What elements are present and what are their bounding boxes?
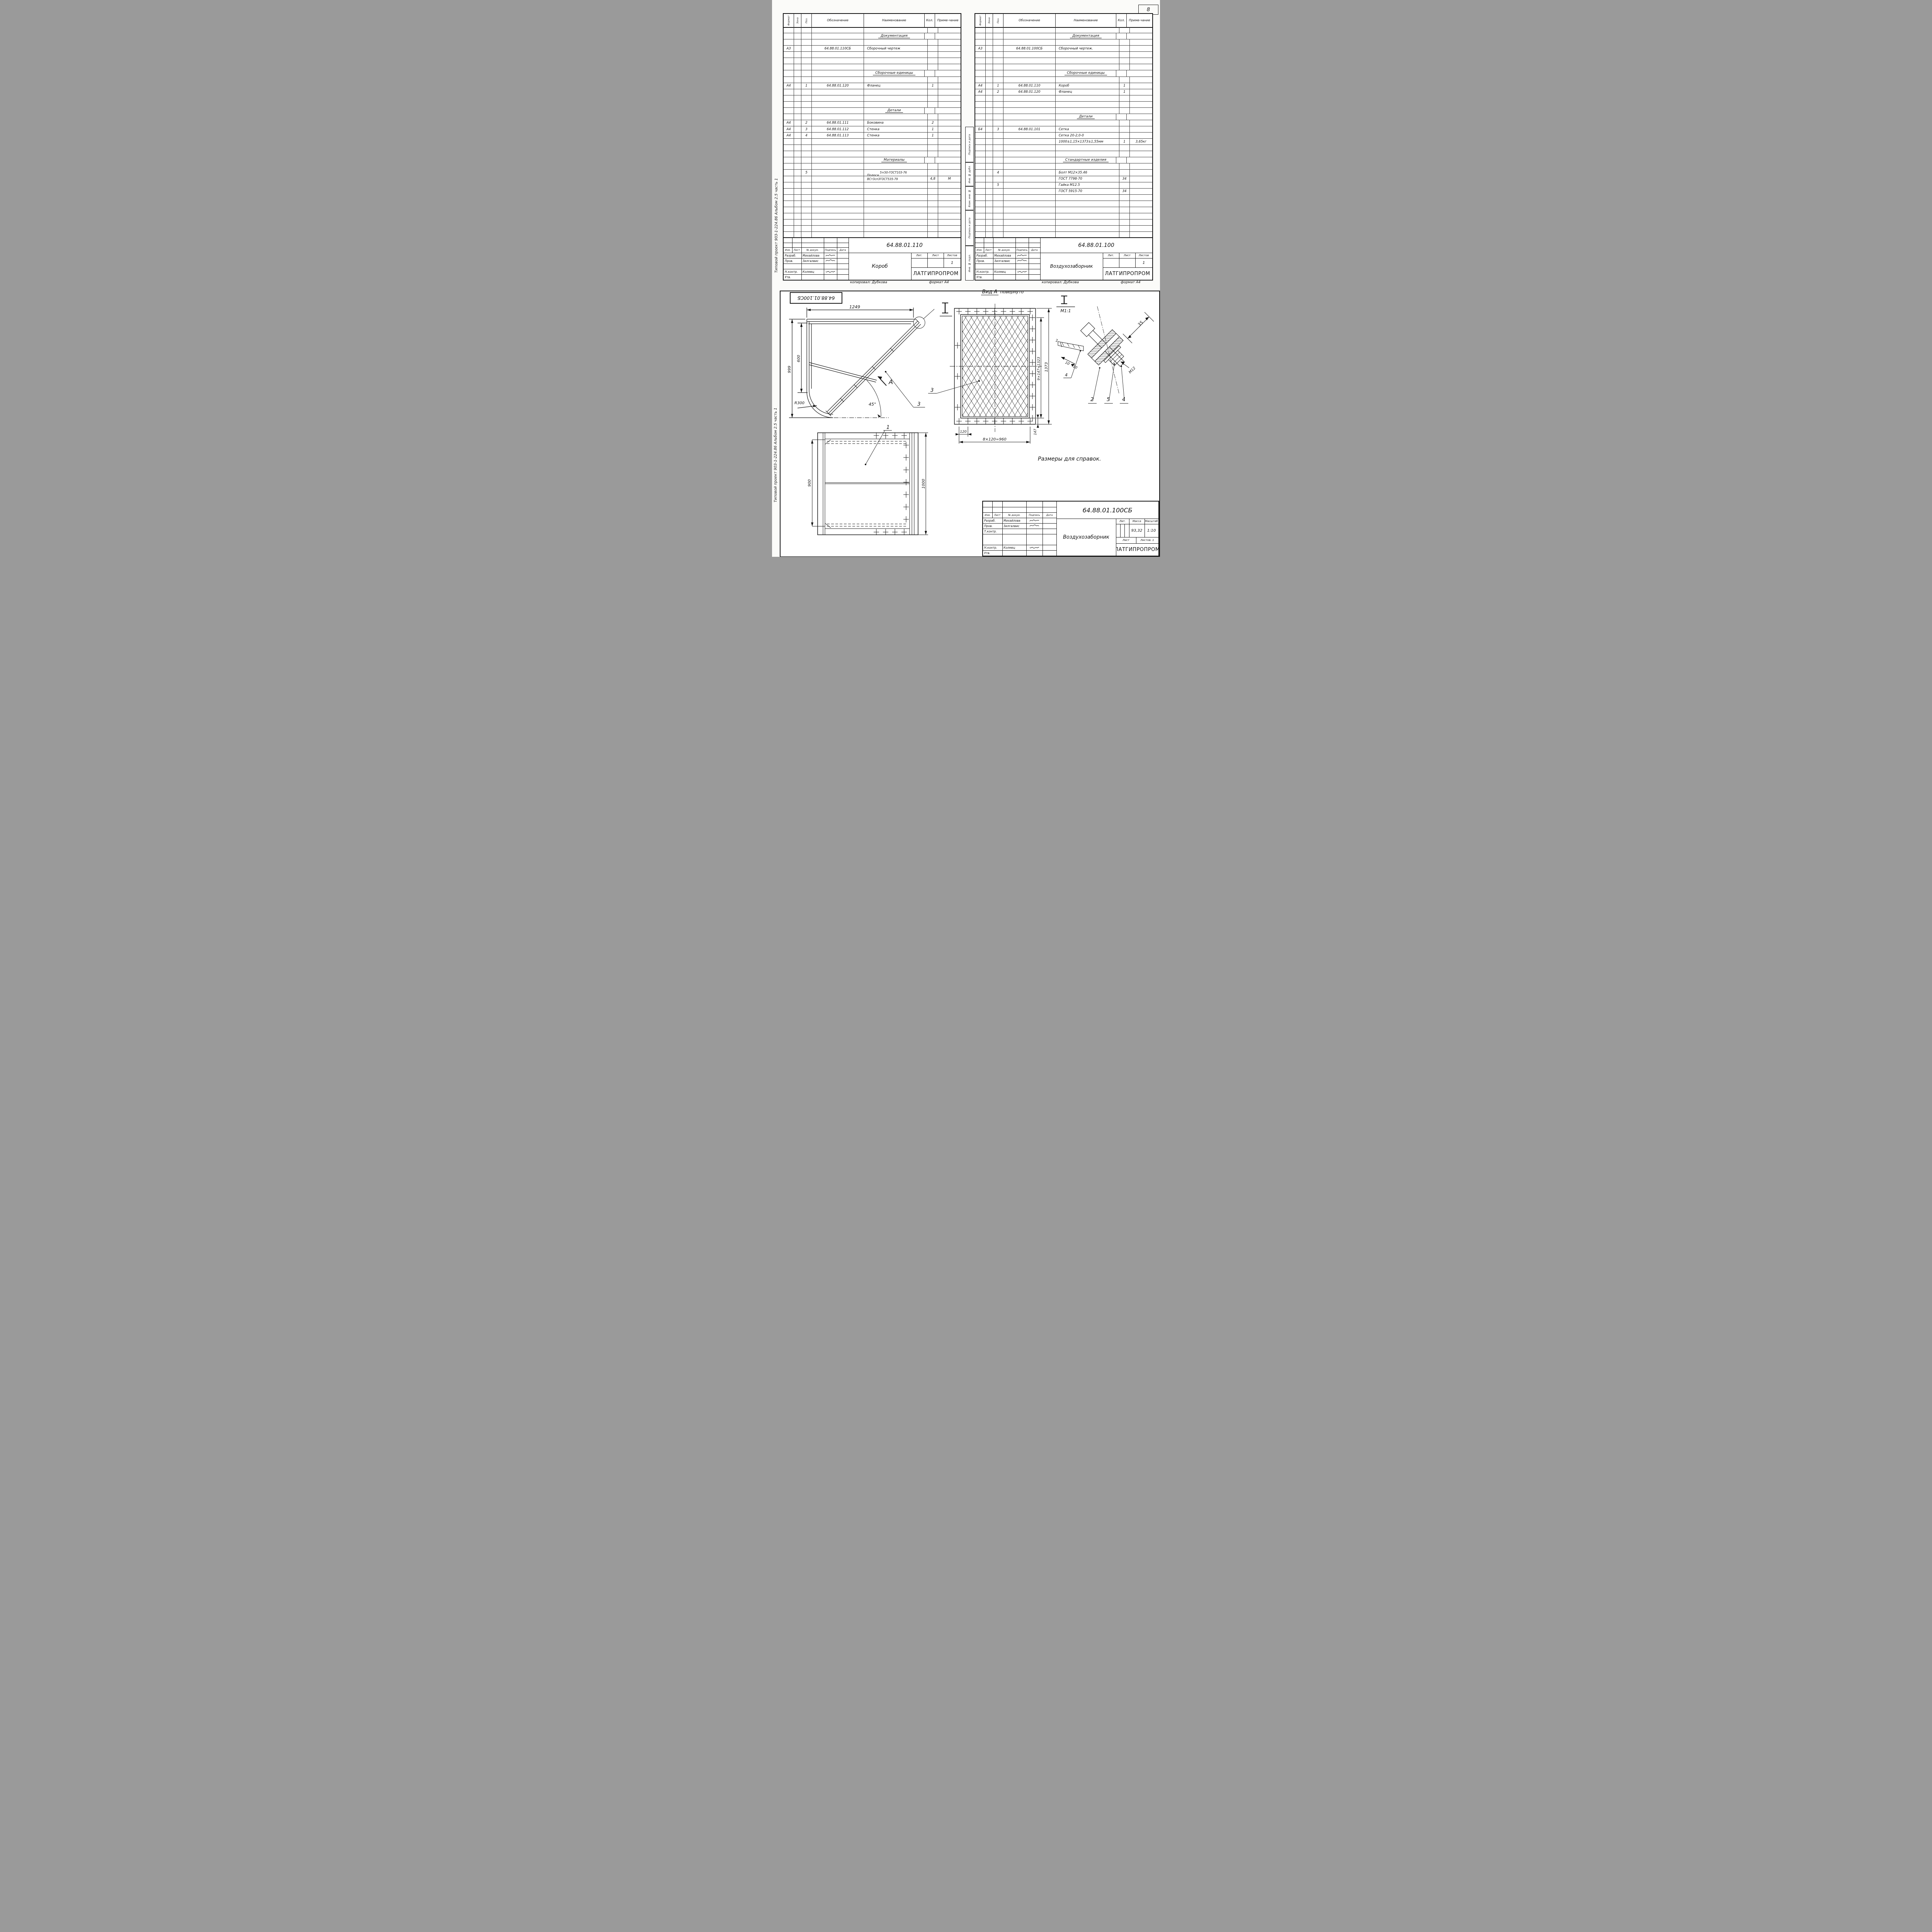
spec-cell-f <box>784 219 794 225</box>
dim-999: 999 <box>787 366 792 373</box>
spec-cell-note <box>938 145 961 151</box>
spec-cell-q: 1 <box>1119 139 1130 145</box>
spec-cell-n <box>1056 102 1119 107</box>
spec-cell-z <box>794 83 801 89</box>
spec-cell-f <box>975 70 986 76</box>
spec-cell-d <box>1003 27 1056 33</box>
spec-cell-p <box>993 46 1003 51</box>
role: Утв. <box>983 550 1003 556</box>
spec-cell-note <box>1130 182 1152 188</box>
spec-cell-n <box>864 219 928 225</box>
spec-cell-p <box>993 207 1003 213</box>
spec-cell-n: Сборочные единицы <box>864 70 925 76</box>
stamp-field: Инв. № дубл. <box>965 162 974 186</box>
spec-sheet-vozduhozabornik: Формат Зона Поз. Обозначение Наименовани… <box>975 13 1153 281</box>
spec-cell-f <box>784 157 794 163</box>
spec-row <box>784 58 961 64</box>
spec-cell-d <box>1003 70 1056 76</box>
spec-row <box>975 102 1152 108</box>
spec-cell-z <box>794 77 801 83</box>
rev-sign: Подпись <box>824 247 837 253</box>
spec-cell-d <box>812 58 864 64</box>
spec-row <box>784 182 961 189</box>
col-format: Формат <box>784 14 794 27</box>
spec-cell-n: Детали <box>864 108 925 114</box>
spec-cell-note <box>1130 195 1152 201</box>
side-view-drawing: 1249 600 999 R300 45° А 3 <box>786 304 937 420</box>
callout-3: 3 <box>930 388 934 393</box>
spec-cell-note <box>938 95 961 101</box>
spec-cell-d <box>1003 39 1056 45</box>
spec-cell-q <box>1119 27 1130 33</box>
spec-row <box>784 27 961 33</box>
spec-cell-p: 3 <box>993 126 1003 132</box>
spec-cell-q <box>928 213 938 219</box>
spec-cell-n: ГОСТ 5915-70 <box>1056 189 1119 194</box>
spec-cell-z <box>794 145 801 151</box>
reference-note: Размеры для справок. <box>1038 456 1101 462</box>
spec-row <box>784 64 961 70</box>
spec-cell-z <box>986 195 993 201</box>
spec-row <box>975 64 1152 70</box>
section-heading: Детали <box>885 109 903 113</box>
spec-cell-p <box>801 219 812 225</box>
spec-cell-d <box>812 157 864 163</box>
spec-cell-n: Стандартные изделия <box>1056 157 1116 163</box>
spec-cell-d <box>1003 207 1056 213</box>
spec-row <box>975 151 1152 157</box>
spec-cell-q <box>928 64 938 70</box>
spec-cell-p <box>993 189 1003 194</box>
rev-izm: Изм. <box>784 247 792 253</box>
spec-cell-d <box>1003 33 1056 39</box>
spec-cell-d <box>812 151 864 157</box>
spec-cell-q <box>928 77 938 83</box>
spec-cell-q: 1 <box>1119 83 1130 89</box>
signature <box>1026 545 1043 550</box>
spec-row <box>975 120 1152 126</box>
spec-cell-d <box>1003 157 1056 163</box>
spec-row <box>975 58 1152 64</box>
dim-1000: 1000 <box>922 479 926 488</box>
spec-cell-f: Б4 <box>975 126 986 132</box>
spec-cell-note <box>938 120 961 126</box>
spec-row <box>784 219 961 226</box>
col-name: Наименование <box>864 14 925 27</box>
spec-cell-f <box>975 219 986 225</box>
rev-list: Лист <box>984 247 993 253</box>
spec-cell-p <box>801 213 812 219</box>
mass-label: Масса <box>1129 519 1145 524</box>
spec-cell-n <box>1056 226 1119 231</box>
spec-cell-q <box>1116 114 1127 120</box>
spec-cell-d <box>812 232 864 238</box>
signature <box>1015 269 1029 274</box>
spec-row: Документация <box>784 33 961 39</box>
spec-cell-note <box>1130 201 1152 207</box>
spec-cell-p <box>993 70 1003 76</box>
spec-cell-d <box>812 114 864 120</box>
spec-cell-note <box>1130 163 1152 169</box>
signature <box>1015 258 1029 264</box>
col-pos: Поз. <box>801 14 812 27</box>
spec-cell-n <box>864 201 928 207</box>
spec-cell-z <box>986 170 993 175</box>
spec-cell-q <box>1119 145 1130 151</box>
spec-cell-d: 64.88.01.113 <box>812 133 864 138</box>
spec-cell-note <box>938 126 961 132</box>
spec-cell-f <box>975 108 986 114</box>
spec-row <box>784 95 961 102</box>
spec-cell-z <box>986 151 993 157</box>
spec-cell-z <box>986 64 993 70</box>
spec-cell-n <box>864 226 928 231</box>
spec-cell-q <box>1116 157 1127 163</box>
spec-cell-n <box>1056 120 1119 126</box>
view-a-drawing: 9×147=1323 1373 147 120 8×120=960 3 <box>925 299 1056 446</box>
spec-cell-q <box>925 157 935 163</box>
stamp-text: 64.88.01.100СБ <box>798 295 835 301</box>
spec-row <box>975 27 1152 33</box>
spec-cell-d <box>812 27 864 33</box>
spec-cell-p <box>993 58 1003 64</box>
spec-cell-z <box>794 33 801 39</box>
spec-cell-d <box>1003 163 1056 169</box>
stamp-field: Инв. № подл. <box>965 246 974 281</box>
spec-cell-note: М <box>938 176 961 182</box>
format-note: формат А4 <box>923 280 954 285</box>
spec-cell-f: А4 <box>784 83 794 89</box>
spec-row: Детали <box>784 108 961 114</box>
spec-cell-d <box>812 89 864 95</box>
spec-cell-d <box>812 176 864 182</box>
spec-cell-p <box>993 77 1003 83</box>
spec-cell-p <box>801 108 812 114</box>
spec-cell-d <box>1003 108 1056 114</box>
spec-row: А4464.88.01.113Стенка1 <box>784 133 961 139</box>
spec-cell-note <box>935 157 961 163</box>
spec-cell-q: 4,8 <box>928 176 938 182</box>
spec-row <box>784 151 961 157</box>
spec-row: А4164.88.01.110Короб1 <box>975 83 1152 89</box>
spec-cell-note <box>935 108 961 114</box>
spec-row: А364.88.01.110СБСборочный чертеж <box>784 46 961 52</box>
spec-row <box>975 219 1152 226</box>
spec-cell-n <box>864 163 928 169</box>
col-qty: Кол. <box>925 14 935 27</box>
spec-row <box>975 39 1152 46</box>
spec-cell-q <box>1119 195 1130 201</box>
dim-2: 2 <box>1056 339 1058 343</box>
rev-date: Дата <box>1029 247 1040 253</box>
spec-cell-f <box>975 213 986 219</box>
spec-cell-p <box>801 163 812 169</box>
dim-r300: R300 <box>794 401 804 405</box>
spec-cell-d <box>812 33 864 39</box>
spec-cell-n <box>1056 201 1119 207</box>
spec-cell-z <box>986 213 993 219</box>
spec-cell-note <box>1130 52 1152 58</box>
spec-row <box>784 77 961 83</box>
spec-cell-f <box>975 139 986 145</box>
spec-cell-n <box>864 207 928 213</box>
spec-cell-d <box>1003 114 1056 120</box>
spec-cell-n <box>864 52 928 58</box>
signature <box>824 253 837 258</box>
spec-cell-d: 64.88.01.110СБ <box>812 46 864 51</box>
spec-cell-q <box>928 27 938 33</box>
spec-cell-note <box>1130 83 1152 89</box>
spec-cell-z <box>986 219 993 225</box>
spec-row: А4264.88.01.120Фланец1 <box>975 89 1152 95</box>
spec-cell-n <box>864 189 928 194</box>
spec-cell-n: Сборочный чертеж <box>864 46 928 51</box>
spec-cell-note <box>1130 102 1152 107</box>
spec-cell-note <box>938 114 961 120</box>
dim-147: 147 <box>1034 429 1037 435</box>
spec-cell-note: 3,65кг <box>1130 139 1152 145</box>
spec-row <box>784 207 961 213</box>
spec-row <box>784 189 961 195</box>
spec-row: ГОСТ 7798-7034 <box>975 176 1152 182</box>
spec-cell-note <box>1130 46 1152 51</box>
spec-cell-z <box>986 58 993 64</box>
spec-row <box>975 195 1152 201</box>
rev-date: Дата <box>1043 512 1056 518</box>
spec-row: 4Болт М12×35.46 <box>975 170 1152 176</box>
spec-cell-n <box>1056 27 1119 33</box>
spec-cell-q <box>925 108 935 114</box>
spec-row <box>975 108 1152 114</box>
rev-doc: № докум. <box>1002 512 1026 518</box>
spec-cell-note <box>938 52 961 58</box>
spec-cell-d <box>1003 58 1056 64</box>
spec-cell-p <box>801 58 812 64</box>
spec-cell-note <box>938 139 961 145</box>
spec-cell-q: 1 <box>928 133 938 138</box>
spec-cell-n <box>1056 77 1119 83</box>
spec-cell-note <box>1130 189 1152 194</box>
spec-rows: ДокументацияА364.88.01.100СБСборочный че… <box>975 27 1152 238</box>
spec-cell-f <box>784 139 794 145</box>
spec-cell-q: 1 <box>928 83 938 89</box>
spec-cell-n: Гайка М12.5 <box>1056 182 1119 188</box>
spec-cell-d <box>1003 151 1056 157</box>
spec-cell-q <box>1119 182 1130 188</box>
spec-cell-q <box>928 189 938 194</box>
spec-cell-d <box>1003 95 1056 101</box>
spec-row: ВСт3сп3ГОСТ535-794,8М <box>784 176 961 182</box>
spec-cell-p <box>993 163 1003 169</box>
spec-cell-q <box>925 33 935 39</box>
spec-cell-z <box>986 126 993 132</box>
spec-cell-p <box>801 77 812 83</box>
sheet-label: Лист <box>1116 537 1136 543</box>
main-title-block: 64.88.01.100СБ Воздухозаборник Лит. Масс… <box>982 501 1159 556</box>
spec-sheet-korob: Формат Зона Поз. Обозначение Наименовани… <box>783 13 961 281</box>
spec-cell-n <box>864 114 928 120</box>
spec-cell-n: Полоса5×50-ГОСТ103-76 <box>864 170 928 175</box>
spec-cell-q <box>1119 126 1130 132</box>
spec-cell-d <box>812 102 864 107</box>
spec-cell-q <box>928 102 938 107</box>
spec-cell-d <box>812 77 864 83</box>
dim-m12: М12 <box>1128 366 1136 374</box>
spec-cell-p: 1 <box>993 83 1003 89</box>
spec-cell-note <box>938 195 961 201</box>
spec-cell-p <box>801 139 812 145</box>
spec-cell-d <box>812 195 864 201</box>
spec-cell-q <box>928 201 938 207</box>
spec-cell-p <box>801 176 812 182</box>
spec-cell-d <box>1003 102 1056 107</box>
spec-cell-note <box>1130 126 1152 132</box>
section-heading: Документация <box>878 34 910 38</box>
list-label: Лист <box>1119 253 1135 258</box>
spec-cell-n <box>864 39 928 45</box>
scale-label: Масштаб <box>1145 519 1158 524</box>
spec-cell-q <box>1119 151 1130 157</box>
spec-cell-d: 64.88.01.120 <box>812 83 864 89</box>
spec-row <box>975 163 1152 170</box>
callout-3: 3 <box>917 401 920 407</box>
spec-cell-d <box>812 39 864 45</box>
spec-cell-note <box>935 70 961 76</box>
flipped-corner-stamp: 64.88.01.100СБ <box>790 292 842 304</box>
spec-cell-z <box>986 27 993 33</box>
spec-row: 5Гайка М12.5 <box>975 182 1152 189</box>
spec-cell-f <box>975 207 986 213</box>
spec-row <box>975 52 1152 58</box>
spec-cell-z <box>794 195 801 201</box>
spec-cell-p <box>801 39 812 45</box>
spec-row: А364.88.01.100СБСборочный чертеж. <box>975 46 1152 52</box>
callout-4-left: 4 <box>1065 372 1068 378</box>
spec-cell-note <box>938 232 961 238</box>
spec-cell-z <box>986 189 993 194</box>
spec-cell-p: 2 <box>993 89 1003 95</box>
spec-cell-n: Детали <box>1056 114 1116 120</box>
spec-cell-q: 1 <box>1119 89 1130 95</box>
spec-cell-p <box>801 27 812 33</box>
listov-label: Листов <box>944 253 961 258</box>
spec-row: Материалы <box>784 157 961 163</box>
spec-cell-z <box>794 157 801 163</box>
spec-cell-p <box>993 139 1003 145</box>
spec-cell-p <box>993 114 1003 120</box>
spec-cell-p <box>993 33 1003 39</box>
spec-cell-z <box>794 207 801 213</box>
spec-cell-z <box>986 145 993 151</box>
spec-cell-note <box>1127 70 1152 76</box>
spec-cell-d <box>812 226 864 231</box>
spec-row: Сборочные единицы <box>784 70 961 77</box>
spec-cell-f <box>975 27 986 33</box>
spec-cell-z <box>794 226 801 231</box>
margin-note-bottom: Типовой проект 903-1-224.86 Альбом 2.5 ч… <box>774 408 778 502</box>
spec-cell-p <box>993 219 1003 225</box>
title-block-korob: 64.88.01.110 Короб Лит. Лист Листов 1 ЛА… <box>783 237 961 281</box>
spec-row <box>784 114 961 120</box>
spec-cell-p <box>993 226 1003 231</box>
spec-cell-n <box>1056 151 1119 157</box>
spec-cell-note <box>1130 39 1152 45</box>
spec-cell-n <box>864 145 928 151</box>
spec-cell-z <box>986 102 993 107</box>
spec-cell-d <box>1003 120 1056 126</box>
spec-cell-n <box>864 151 928 157</box>
spec-cell-note <box>1127 114 1152 120</box>
spec-cell-p <box>993 176 1003 182</box>
callout-2: 2 <box>1090 397 1094 403</box>
dim-8x120: 8×120=960 <box>983 437 1006 442</box>
page-number: 8 <box>1147 7 1150 13</box>
spec-cell-n <box>864 95 928 101</box>
spec-cell-q <box>1119 207 1130 213</box>
spec-cell-note <box>1130 145 1152 151</box>
spec-cell-n: Документация <box>1056 33 1116 39</box>
spec-cell-p: 2 <box>801 120 812 126</box>
spec-cell-p <box>993 52 1003 58</box>
spec-cell-d <box>812 139 864 145</box>
spec-cell-p <box>801 182 812 188</box>
spec-cell-q <box>1116 33 1127 39</box>
spec-cell-n: Сборочный чертеж. <box>1056 46 1119 51</box>
spec-cell-z <box>794 213 801 219</box>
spec-cell-d <box>812 213 864 219</box>
spec-cell-q <box>925 70 935 76</box>
rev-sign: Подпись <box>1026 512 1043 518</box>
spec-cell-d <box>812 163 864 169</box>
spec-cell-q <box>1119 232 1130 238</box>
spec-cell-f <box>975 58 986 64</box>
spec-cell-p <box>801 33 812 39</box>
spec-cell-note <box>938 151 961 157</box>
person: Колмец <box>1002 545 1027 550</box>
spec-row <box>975 201 1152 207</box>
signature <box>1015 253 1029 258</box>
role: Разраб. <box>983 518 1003 523</box>
spec-cell-p <box>801 189 812 194</box>
section-heading: Материалы <box>881 158 907 162</box>
spec-cell-d <box>1003 201 1056 207</box>
spec-cell-f <box>975 201 986 207</box>
spec-cell-n <box>864 27 928 33</box>
spec-row <box>784 213 961 219</box>
spec-cell-p <box>801 151 812 157</box>
spec-cell-n <box>864 182 928 188</box>
drawing-sheet: 8 Типовой проект 903-1-224.86 Альбом 2.5… <box>772 0 1160 557</box>
spec-cell-note <box>935 33 961 39</box>
spec-row <box>784 139 961 145</box>
dim-1249: 1249 <box>849 304 860 310</box>
spec-cell-z <box>794 176 801 182</box>
spec-cell-p <box>993 95 1003 101</box>
spec-cell-z <box>986 89 993 95</box>
spec-cell-note <box>938 226 961 231</box>
spec-cell-note <box>1130 27 1152 33</box>
spec-cell-q <box>928 39 938 45</box>
spec-cell-d <box>1003 64 1056 70</box>
spec-cell-f <box>784 52 794 58</box>
spec-cell-q <box>1119 52 1130 58</box>
spec-row <box>784 163 961 170</box>
spec-cell-note <box>1130 108 1152 114</box>
role: Н.контр. <box>983 545 1003 550</box>
spec-cell-d <box>1003 170 1056 175</box>
rev-list: Лист <box>792 247 801 253</box>
signature <box>1026 523 1043 529</box>
